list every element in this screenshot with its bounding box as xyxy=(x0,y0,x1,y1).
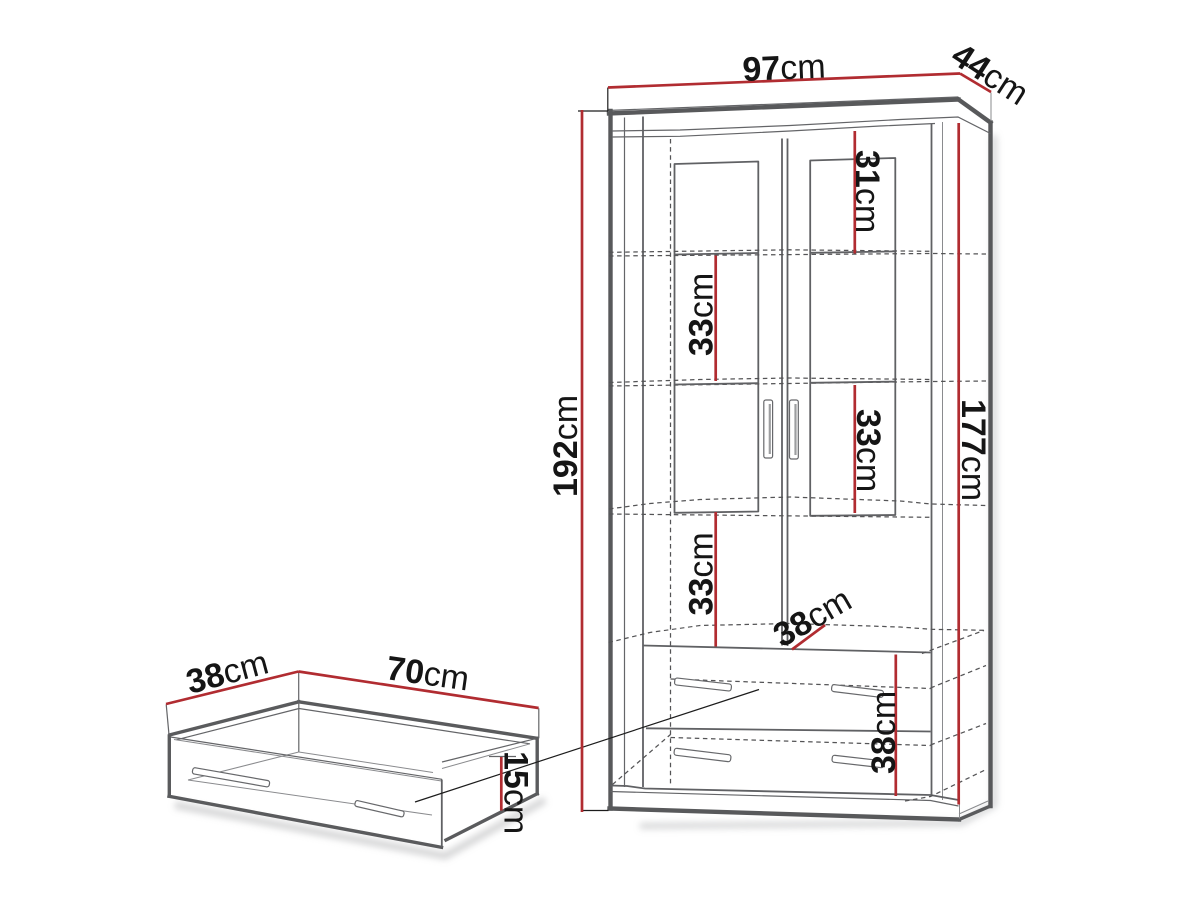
svg-text:15cm: 15cm xyxy=(497,751,535,834)
svg-text:33cm: 33cm xyxy=(683,273,721,356)
svg-text:97cm: 97cm xyxy=(742,47,827,89)
svg-text:192cm: 192cm xyxy=(547,395,585,497)
svg-text:177cm: 177cm xyxy=(954,399,992,501)
svg-text:38cm: 38cm xyxy=(865,691,903,774)
svg-text:33cm: 33cm xyxy=(849,409,887,492)
svg-text:33cm: 33cm xyxy=(683,532,721,615)
svg-text:31cm: 31cm xyxy=(848,150,886,233)
